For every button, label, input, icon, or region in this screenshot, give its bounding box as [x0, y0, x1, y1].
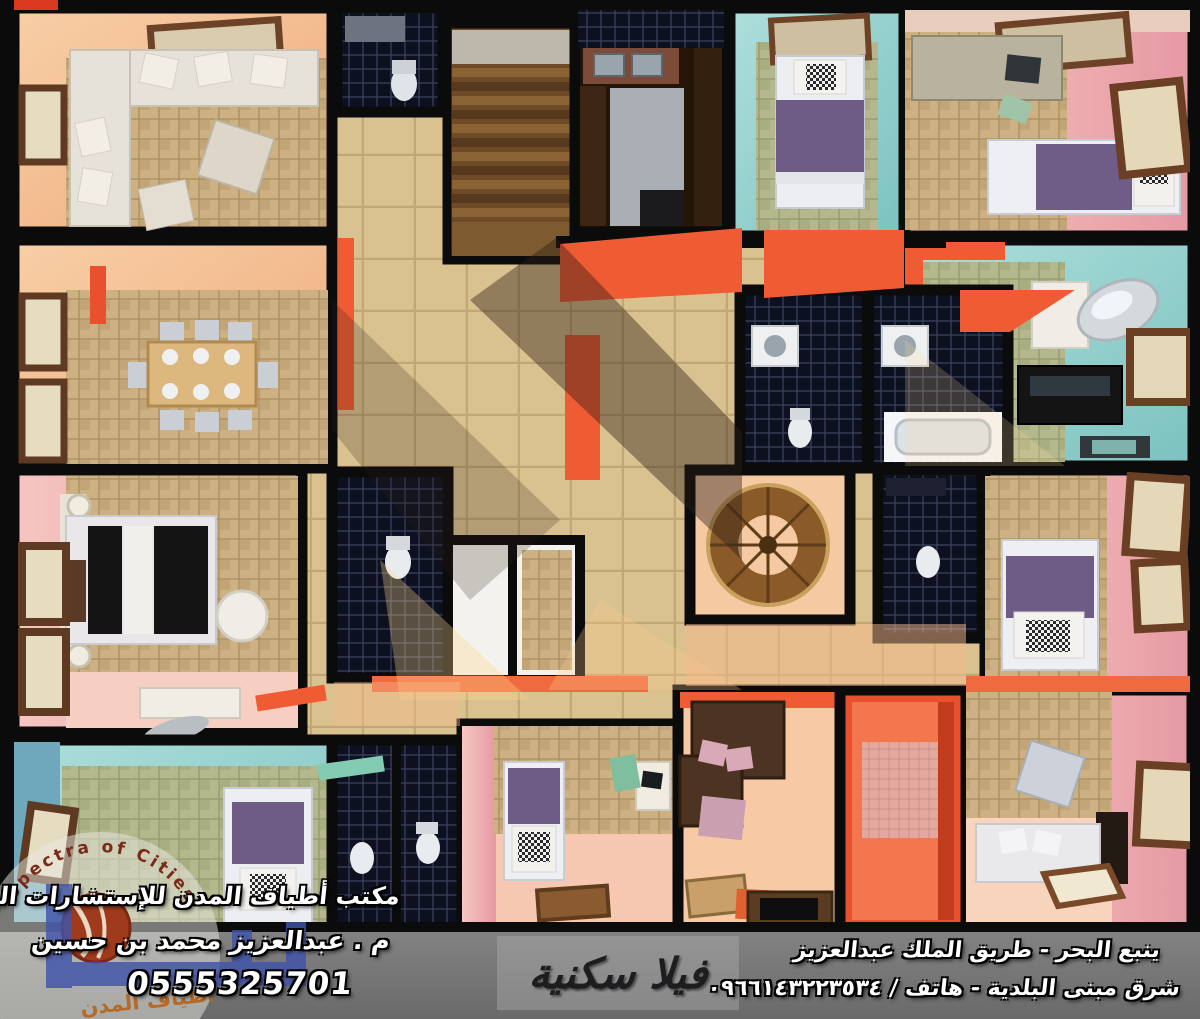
toilet [416, 832, 440, 864]
open-book [1044, 866, 1122, 906]
lamp [68, 495, 90, 517]
rug [537, 886, 609, 921]
plan-title-box: فيلا سكنية [497, 936, 739, 1010]
room-bedroom-pink-bottom [462, 724, 678, 932]
floor-plan-canvas: Spectra of Cities أطياف المدن [0, 0, 1200, 1019]
wall-frame [22, 632, 66, 712]
cabinet [580, 86, 606, 226]
single-bed [504, 762, 564, 880]
wall-frame [22, 88, 64, 162]
computer [1005, 54, 1042, 83]
stair-landing-top [452, 30, 574, 64]
room-bath-mid [878, 470, 982, 638]
address-line1-text: ينبع البحر - طريق الملك عبدالعزيز [809, 938, 1162, 963]
wall-frame [22, 546, 66, 622]
room-majlis [678, 690, 840, 932]
round-table [217, 591, 267, 641]
sink-basin [632, 54, 662, 76]
room-kitchen [575, 8, 727, 232]
room-sitting-bottomright [966, 690, 1198, 932]
toilet [350, 842, 374, 874]
room-bedroom-pink-topright [905, 8, 1193, 236]
vanity [345, 16, 405, 42]
toilet [916, 546, 940, 578]
office-name-text: مكتب أطياف المدن للإستشارات الهندسية [59, 882, 402, 910]
single-bed [1002, 540, 1098, 670]
cabinet [694, 48, 722, 226]
staircase-main [447, 24, 579, 260]
room-bath-top [337, 8, 443, 112]
glass-top [760, 898, 818, 920]
single-bed [776, 56, 864, 208]
room-bedroom-midright [985, 470, 1193, 690]
toilet [788, 416, 812, 448]
room-dining [14, 240, 332, 468]
stair-shaft-orange [840, 690, 966, 932]
wall-frame [1134, 561, 1187, 630]
sink-basin [594, 54, 624, 76]
wall-frame [1136, 765, 1198, 846]
stair-steps [452, 68, 574, 217]
room-master-bedroom [14, 470, 327, 750]
double-bed [60, 494, 216, 667]
villa-floor-plan-render: Spectra of Cities أطياف المدن مكتب أطياف… [0, 0, 1200, 1019]
bench [140, 688, 240, 718]
wall-frame [22, 382, 64, 460]
address-line2-text: شرق مبنى البلدية - هاتف / ٠٩٦٦١٤٣٢٢٣٥٣٤ [779, 976, 1182, 1001]
plan-title-text: فيلا سكنية [527, 949, 709, 998]
lamp [68, 645, 90, 667]
room-bedroom-teal-top [730, 8, 904, 236]
engineer-name-text: م . عبدالعزيز محمد بن حسين [88, 926, 391, 955]
laptop [641, 771, 663, 790]
wall-frame [1125, 476, 1188, 556]
phone-number-text: 0555325701 [118, 966, 362, 1002]
appliance [640, 190, 684, 226]
wall-frame [22, 296, 64, 368]
wall-frame [1114, 81, 1189, 175]
wall-frame [1130, 332, 1190, 402]
room-living [14, 8, 332, 232]
